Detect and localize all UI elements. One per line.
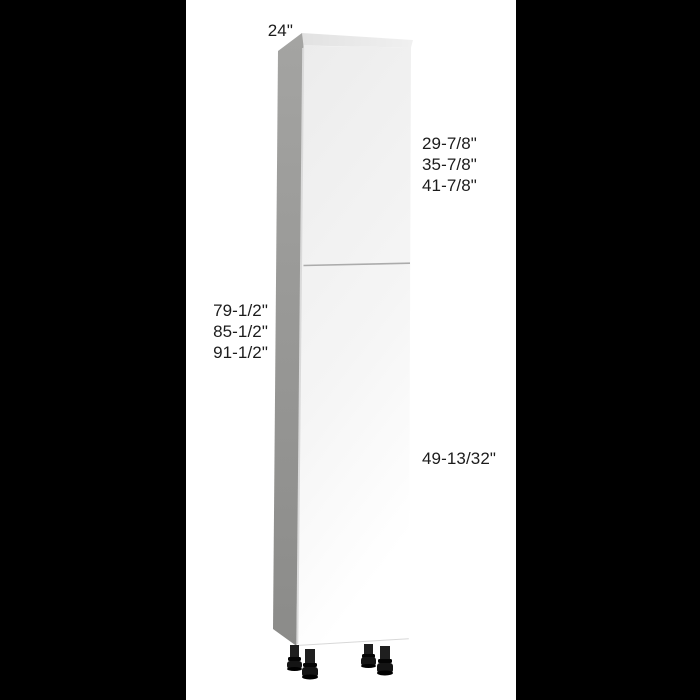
diagram-stage: 24" 29-7/8" 35-7/8" 41-7/8" 79-1/2" 85-1… <box>0 0 700 700</box>
total-height-option: 91-1/2" <box>213 342 268 363</box>
upper-door-height-option: 35-7/8" <box>422 154 477 175</box>
total-height-option: 85-1/2" <box>213 321 268 342</box>
upper-door-height-options: 29-7/8" 35-7/8" 41-7/8" <box>422 133 477 196</box>
upper-door-height-option: 29-7/8" <box>422 133 477 154</box>
upper-door-height-option: 41-7/8" <box>422 175 477 196</box>
total-height-option: 79-1/2" <box>213 300 268 321</box>
lower-door-height-label: 49-13/32" <box>422 448 496 469</box>
total-height-options: 79-1/2" 85-1/2" 91-1/2" <box>213 300 268 363</box>
top-width-label: 24" <box>268 20 293 41</box>
